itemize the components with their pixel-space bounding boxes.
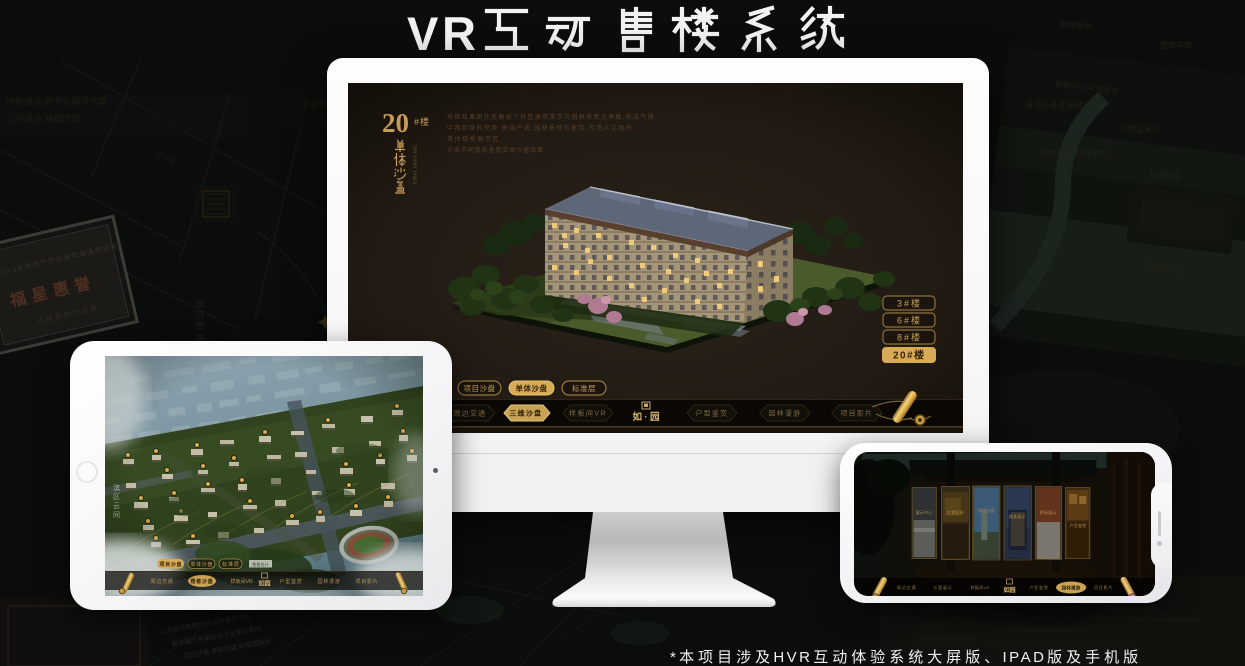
svg-text:如园: 如园 [1004,586,1016,594]
svg-text:项目效果图完美展现了社区建筑美学与园林景观之承载,形成气质: 项目效果图完美展现了社区建筑美学与园林景观之承载,形成气质 [447,113,655,121]
svg-text:园林漫游: 园林漫游 [769,409,802,418]
svg-text:样板间VR: 样板间VR [971,584,990,590]
svg-text:楼栋沙盘: 楼栋沙盘 [191,578,214,585]
svg-text:20: 20 [382,108,409,138]
svg-text:整体鸟瞰: 整体鸟瞰 [1160,40,1192,50]
svg-text:展示中心: 展示中心 [916,509,933,515]
svg-text:20#楼: 20#楼 [893,349,925,362]
svg-text:周边交通: 周边交通 [151,578,174,585]
svg-text:周边交通: 周边交通 [454,409,487,418]
svg-text:如园: 如园 [258,580,270,588]
svg-text:8#楼: 8#楼 [897,332,921,343]
svg-text:标准层: 标准层 [222,561,239,568]
svg-text:项目影片: 项目影片 [356,578,379,585]
svg-text:园林景观 合院洋房: 园林景观 合院洋房 [1040,148,1106,158]
svg-text:项目沙盘: 项目沙盘 [464,383,496,393]
svg-text:户型鉴赏: 户型鉴赏 [280,578,303,585]
svg-text:6#楼: 6#楼 [897,315,921,326]
svg-text:周边交通: 周边交通 [897,584,916,590]
svg-text:三维沙盘: 三维沙盘 [510,409,543,418]
svg-text:单体沙盘: 单体沙盘 [516,383,548,393]
svg-text:项目展示: 项目展示 [1060,21,1092,30]
svg-text:#楼: #楼 [414,116,429,127]
svg-text:户型鉴赏: 户型鉴赏 [1029,584,1048,590]
svg-text:沙盘展示: 沙盘展示 [933,584,952,590]
svg-text:THE SAND TABLE: THE SAND TABLE [413,145,418,185]
svg-text:山河湖海 臻藏院境: 山河湖海 臻藏院境 [6,113,81,124]
svg-text:户型鉴赏: 户型鉴赏 [696,409,729,418]
svg-text:R: R [442,7,476,60]
svg-text:V: V [407,7,439,60]
svg-text:滨河西路: 滨河西路 [196,299,205,344]
svg-text:如·园: 如·园 [633,411,660,423]
svg-text:样板间VR: 样板间VR [569,409,607,418]
svg-text:园林漫游: 园林漫游 [1062,585,1081,592]
svg-text:园林漫游: 园林漫游 [318,578,341,585]
svg-text:3#楼: 3#楼 [897,298,921,309]
svg-text:周边交通 实景展示: 周边交通 实景展示 [1025,100,1091,110]
svg-text:楼栋展示: 楼栋展示 [1009,513,1026,519]
svg-text:项目影片: 项目影片 [841,409,874,418]
svg-text:项目沙盘: 项目沙盘 [978,507,995,513]
svg-text:中西韵味的完美,高端严选,园林景观与建筑,打造人文居所: 中西韵味的完美,高端严选,园林景观与建筑,打造人文居所 [447,124,633,132]
svg-text:样板间VR: 样板间VR [231,578,254,585]
svg-text:项目沙盘: 项目沙盘 [160,561,182,568]
svg-text:项目影片: 项目影片 [1094,584,1113,590]
svg-text:拼标语站 数字化解决方案: 拼标语站 数字化解决方案 [6,96,108,107]
svg-text:单体沙盘: 单体沙盘 [191,561,213,568]
svg-text:楼栋沙盘: 楼栋沙盘 [1150,170,1182,180]
svg-text:样板展示: 样板展示 [1040,509,1057,515]
svg-text:滨区云间: 滨区云间 [113,483,121,520]
svg-text:户型鉴赏: 户型鉴赏 [1070,522,1087,528]
svg-text:售楼处计: 售楼处计 [252,561,269,568]
svg-text:示范区展示: 示范区展示 [1120,124,1160,134]
svg-text:单体楼栋展示区.: 单体楼栋展示区. [447,135,503,143]
svg-text:实景园林: 实景园林 [947,509,964,515]
svg-text:标准层: 标准层 [572,383,596,393]
svg-text:点击不同楼栋查看单体沙盘效果.: 点击不同楼栋查看单体沙盘效果. [447,146,547,154]
